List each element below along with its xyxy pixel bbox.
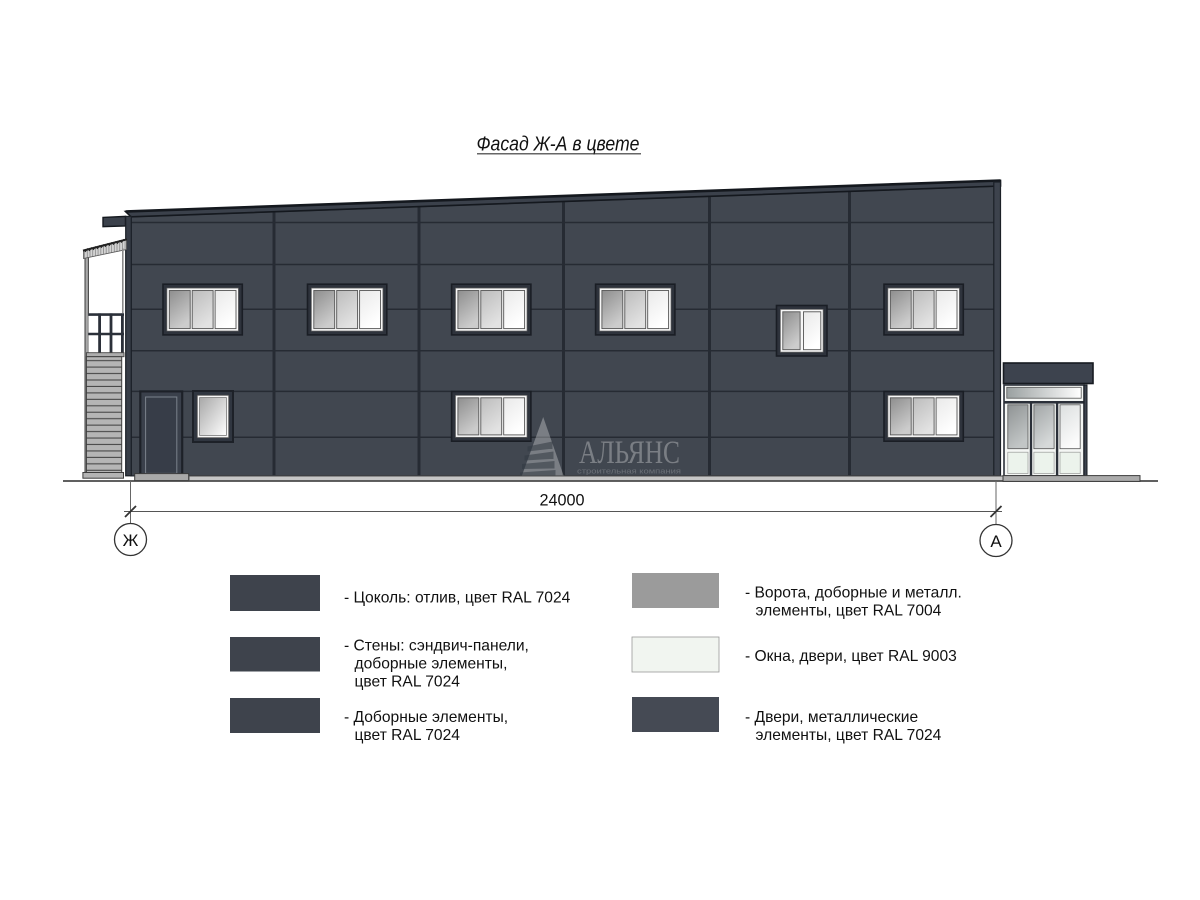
svg-text:цвет RAL 7024: цвет RAL 7024	[355, 674, 461, 691]
svg-text:- Цоколь: отлив, цвет RAL 7024: - Цоколь: отлив, цвет RAL 7024	[344, 590, 571, 607]
svg-text:- Двери, металлические: - Двери, металлические	[745, 709, 918, 726]
svg-text:элементы, цвет RAL 7004: элементы, цвет RAL 7004	[756, 603, 942, 620]
svg-text:- Стены: сэндвич-панели,: - Стены: сэндвич-панели,	[344, 638, 529, 655]
svg-text:Фасад Ж-А в цвете: Фасад Ж-А в цвете	[477, 134, 640, 156]
svg-text:Ж: Ж	[123, 531, 139, 550]
svg-text:строительная компания: строительная компания	[577, 467, 681, 476]
svg-text:цвет RAL 7024: цвет RAL 7024	[355, 727, 461, 744]
svg-text:доборные элементы,: доборные элементы,	[355, 656, 508, 673]
svg-text:24000: 24000	[539, 492, 584, 510]
svg-text:- Ворота, доборные и металл.: - Ворота, доборные и металл.	[745, 585, 962, 602]
svg-text:- Окна, двери, цвет RAL 9003: - Окна, двери, цвет RAL 9003	[745, 648, 957, 665]
svg-text:А: А	[990, 532, 1002, 551]
svg-text:- Доборные элементы,: - Доборные элементы,	[344, 709, 508, 726]
svg-text:элементы, цвет RAL 7024: элементы, цвет RAL 7024	[756, 727, 942, 744]
